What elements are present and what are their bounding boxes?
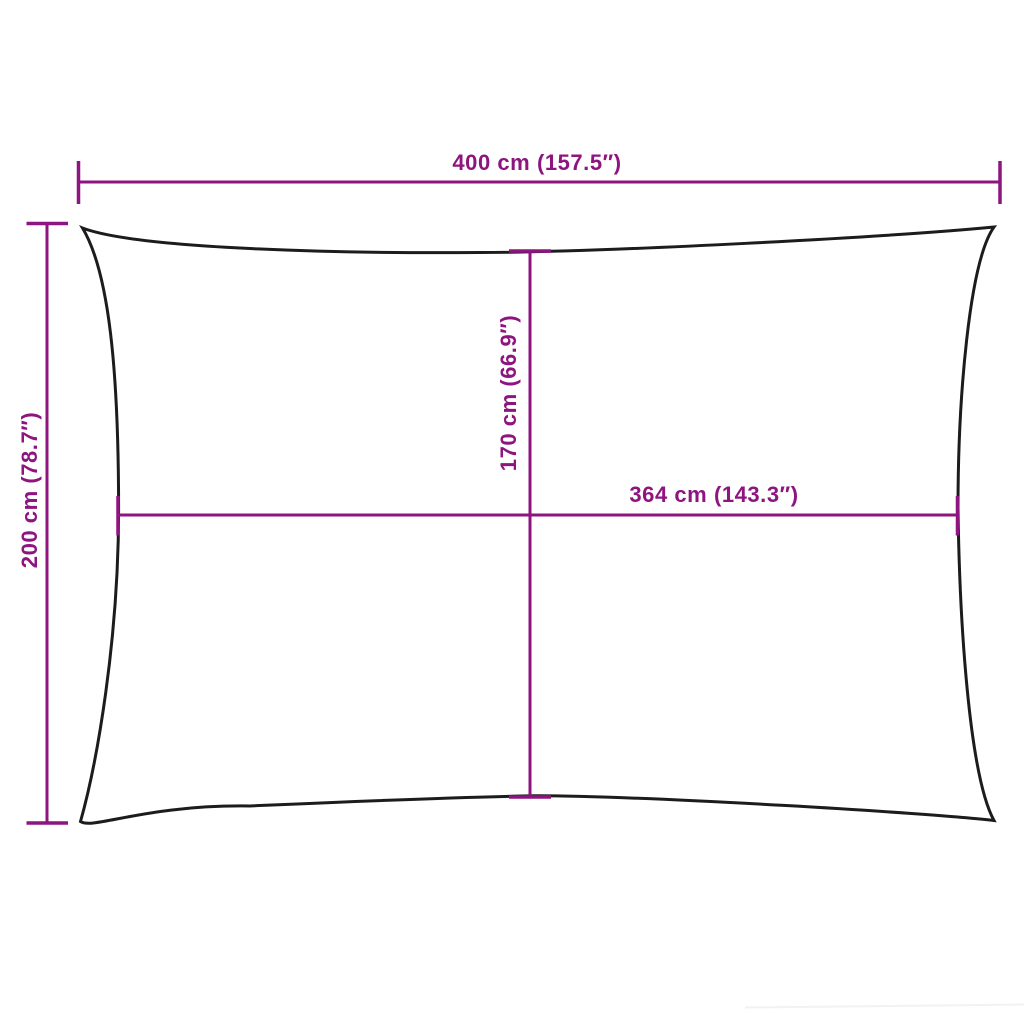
svg-text:400 cm (157.5″): 400 cm (157.5″): [452, 150, 621, 175]
svg-text:200 cm (78.7″): 200 cm (78.7″): [17, 412, 42, 568]
svg-text:364 cm (143.3″): 364 cm (143.3″): [629, 482, 798, 507]
svg-text:170 cm (66.9″): 170 cm (66.9″): [496, 315, 521, 471]
